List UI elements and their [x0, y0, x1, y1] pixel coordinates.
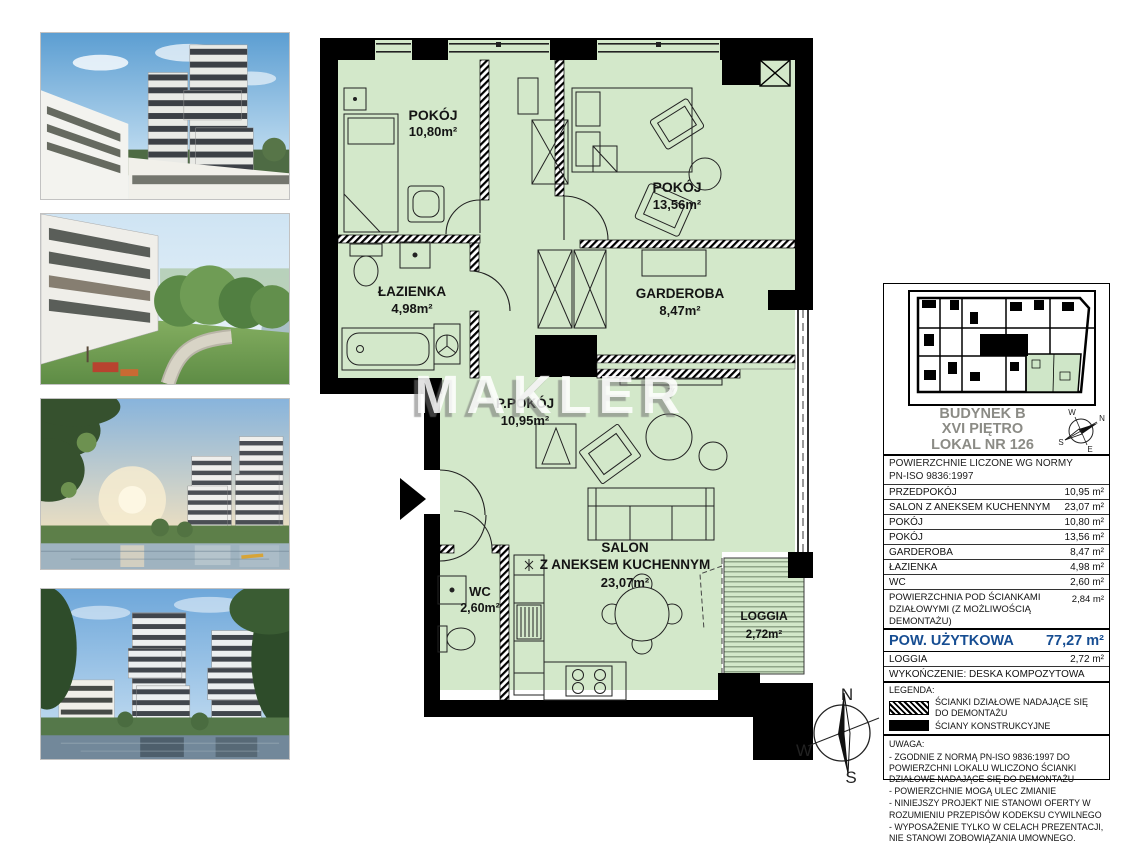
compass-w-label: W [796, 741, 812, 760]
row-value: 10,80 m² [1065, 517, 1104, 528]
note-3: - NINIEJSZY PROJEKT NIE STANOWI OFERTY W… [889, 798, 1104, 820]
floor-overview-drawing [910, 292, 1094, 404]
row-label: SALON Z ANEKSEM KUCHENNYM [889, 502, 1050, 513]
garderoba-niche [597, 363, 795, 369]
floor-plan: POKÓJ 10,80m² POKÓJ 13,56m² ŁAZIENKA 4,9… [320, 28, 817, 761]
table-row: SALON Z ANEKSEM KUCHENNYM23,07 m² [884, 499, 1109, 514]
legend-item-partition: ŚCIANKI DZIAŁOWE NADAJĄCE SIĘ DO DEMONTA… [889, 697, 1104, 718]
label-pokoj-2: POKÓJ [652, 178, 701, 195]
floor-overview-minimap [908, 290, 1096, 406]
loggia-row: LOGGIA2,72 m² [884, 652, 1109, 666]
photo-3-illustration [41, 399, 289, 569]
table-row: WC2,60 m² [884, 574, 1109, 589]
mini-compass-w: W [1068, 408, 1076, 417]
row-value: 23,07 m² [1065, 502, 1104, 513]
shaft-box [760, 60, 790, 86]
partition-label: POWIERZCHNIA POD ŚCIANKAMI DZIAŁOWYMI (Z… [889, 592, 1041, 627]
legend-item-structural: ŚCIANY KONSTRUKCYJNE [889, 720, 1104, 731]
row-value: 13,56 m² [1065, 532, 1104, 543]
norm-line-1: POWIERZCHNIE LICZONE WG NORMY [889, 458, 1104, 471]
building-render-photo-1[interactable] [40, 32, 290, 200]
partition-area-row: POWIERZCHNIA POD ŚCIANKAMI DZIAŁOWYMI (Z… [884, 589, 1109, 628]
floor-plan-drawing: POKÓJ 10,80m² POKÓJ 13,56m² ŁAZIENKA 4,9… [320, 28, 817, 761]
mini-compass-n: N [1099, 414, 1105, 423]
row-label: ŁAZIENKA [889, 562, 937, 573]
mini-compass-e: E [1087, 445, 1092, 453]
label-tv: TV [667, 388, 674, 394]
loggia-label: LOGGIA [889, 654, 927, 665]
photo-1-illustration [41, 33, 289, 199]
label-garderoba: GARDEROBA [636, 286, 725, 301]
label-wc: WC [469, 584, 491, 599]
table-row: ŁAZIENKA4,98 m² [884, 559, 1109, 574]
norm-header: POWIERZCHNIE LICZONE WG NORMY PN-ISO 983… [884, 454, 1109, 484]
row-value: 4,98 m² [1070, 562, 1104, 573]
label-wc-area: 2,60m² [460, 601, 500, 615]
table-row: PRZEDPOKÓJ10,95 m² [884, 484, 1109, 499]
compass-s-label: S [845, 768, 856, 784]
building-render-photo-4[interactable] [40, 588, 290, 760]
loggia-value: 2,72 m² [1070, 654, 1104, 665]
building-name: BUDYNEK B [910, 407, 1055, 423]
table-row: POKÓJ13,56 m² [884, 529, 1109, 544]
table-row: GARDEROBA8,47 m² [884, 544, 1109, 559]
notes-section: UWAGA: - ZGODNIE Z NORMĄ PN-ISO 9836:199… [884, 734, 1109, 847]
label-lazienka-area: 4,98m² [391, 301, 433, 316]
legend-item-structural-label: ŚCIANY KONSTRUKCYJNE [935, 721, 1050, 732]
row-value: 10,95 m² [1065, 487, 1104, 498]
compass-n-label: N [841, 685, 853, 704]
label-ppokoj-area: 10,95m² [501, 413, 550, 428]
right-window-wall [797, 310, 809, 552]
norm-line-2: PN-ISO 9836:1997 [889, 471, 1104, 484]
label-ppokoj: P.POKÓJ [496, 396, 554, 411]
label-pokoj-1-area: 10,80m² [409, 124, 458, 139]
label-lazienka: ŁAZIENKA [378, 284, 446, 299]
row-label: POKÓJ [889, 517, 923, 528]
label-loggia-area: 2,72m² [746, 629, 783, 641]
mini-compass-s: S [1058, 438, 1063, 447]
hatched-wall-swatch [889, 701, 929, 715]
photo-4-illustration [41, 589, 289, 759]
row-label: PRZEDPOKÓJ [889, 487, 957, 498]
building-render-photo-3[interactable] [40, 398, 290, 570]
photo-2-illustration [41, 214, 289, 384]
row-label: POKÓJ [889, 532, 923, 543]
unit-number: LOKAL NR 126 [910, 438, 1055, 454]
legend-title: LEGENDA: [889, 685, 1104, 695]
label-loggia: LOGGIA [740, 609, 788, 623]
label-salon-area: 23,07m² [601, 575, 650, 590]
finish-label: WYKOŃCZENIE: DESKA KOMPOZYTOWA [889, 669, 1085, 680]
usable-area-label: POW. UŻYTKOWA [889, 633, 1014, 649]
legend-section: LEGENDA: ŚCIANKI DZIAŁOWE NADAJĄCE SIĘ D… [884, 681, 1109, 734]
floor-name: XVI PIĘTRO [910, 422, 1055, 438]
unit-header: BUDYNEK B XVI PIĘTRO LOKAL NR 126 W N S … [884, 406, 1109, 454]
partition-value: 2,84 m² [1072, 592, 1104, 627]
label-garderoba-area: 8,47m² [659, 303, 701, 318]
building-render-photo-2[interactable] [40, 213, 290, 385]
note-4: - WYPOSAŻENIE TYLKO W CELACH PREZENTACJI… [889, 822, 1104, 844]
note-2: - POWIERZCHNIE MOGĄ ULEC ZMIANIE [889, 786, 1104, 797]
row-label: GARDEROBA [889, 547, 953, 558]
entrance-arrow-icon [400, 478, 426, 520]
unit-info-panel: BUDYNEK B XVI PIĘTRO LOKAL NR 126 W N S … [883, 283, 1110, 780]
compass-rose-drawing: N E W S [795, 684, 895, 784]
mini-compass: W N S E [1055, 407, 1107, 453]
row-value: 2,60 m² [1070, 577, 1104, 588]
legend-item-partition-label: ŚCIANKI DZIAŁOWE NADAJĄCE SIĘ DO DEMONTA… [935, 697, 1104, 718]
compass-rose: N E W S [795, 684, 895, 784]
usable-area-value: 77,27 m² [1046, 633, 1104, 649]
row-value: 8,47 m² [1070, 547, 1104, 558]
table-row: POKÓJ10,80 m² [884, 514, 1109, 529]
row-label: WC [889, 577, 906, 588]
label-salon-2: Z ANEKSEM KUCHENNYM [540, 557, 711, 572]
label-pokoj-1: POKÓJ [408, 106, 457, 123]
note-1: - ZGODNIE Z NORMĄ PN-ISO 9836:1997 DO PO… [889, 752, 1104, 786]
label-pokoj-2-area: 13,56m² [653, 197, 702, 212]
label-salon: SALON [601, 540, 648, 555]
solid-wall-swatch [889, 720, 929, 731]
usable-area-row: POW. UŻYTKOWA 77,27 m² [884, 628, 1109, 652]
notes-title: UWAGA: [889, 739, 1104, 750]
finish-row: WYKOŃCZENIE: DESKA KOMPOZYTOWA [884, 666, 1109, 681]
